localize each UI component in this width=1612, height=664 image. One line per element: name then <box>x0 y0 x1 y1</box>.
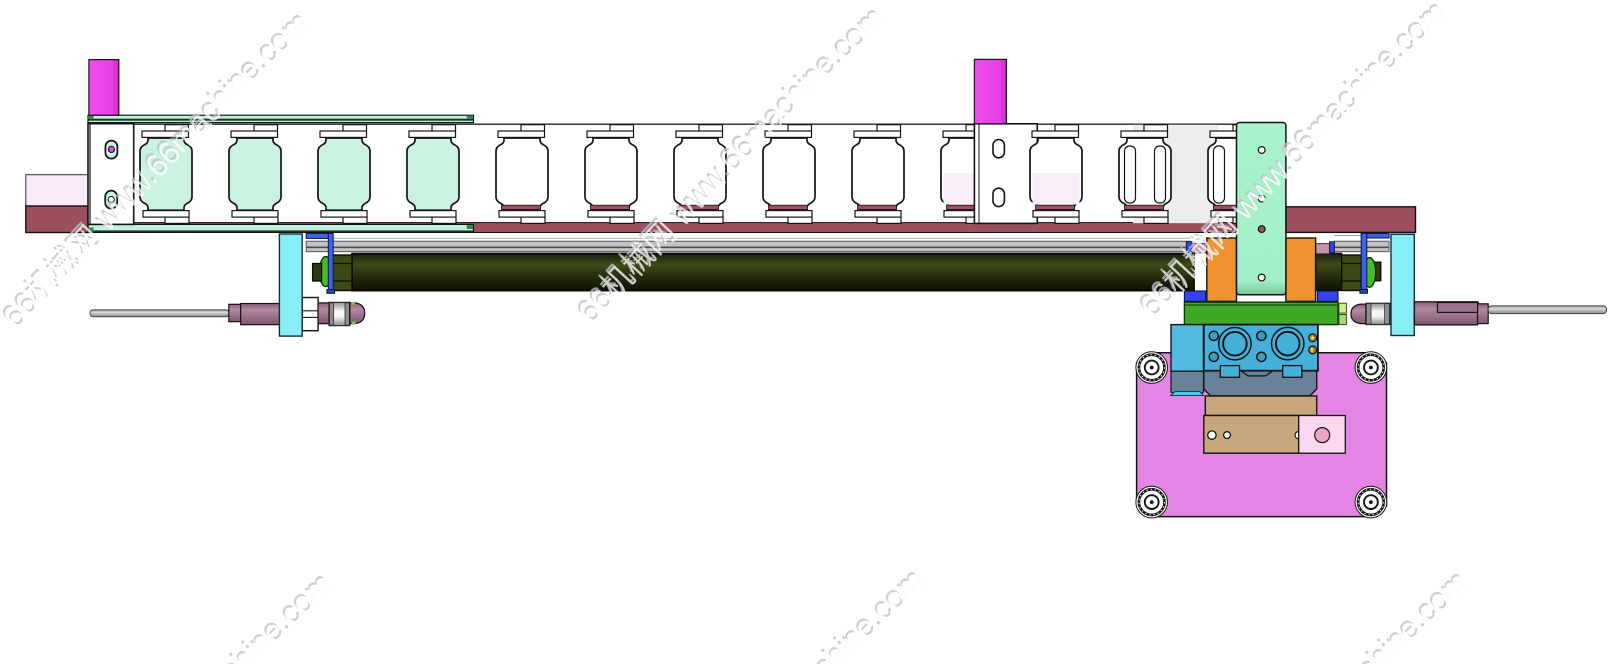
svg-text:66机械网 www.66machine.com: 66机械网 www.66machine.com <box>19 566 340 664</box>
svg-text:66机械网 www.66machine.com: 66机械网 www.66machine.com <box>1155 564 1476 664</box>
svg-text:66机械网 www.66machine.com: 66机械网 www.66machine.com <box>611 562 932 664</box>
